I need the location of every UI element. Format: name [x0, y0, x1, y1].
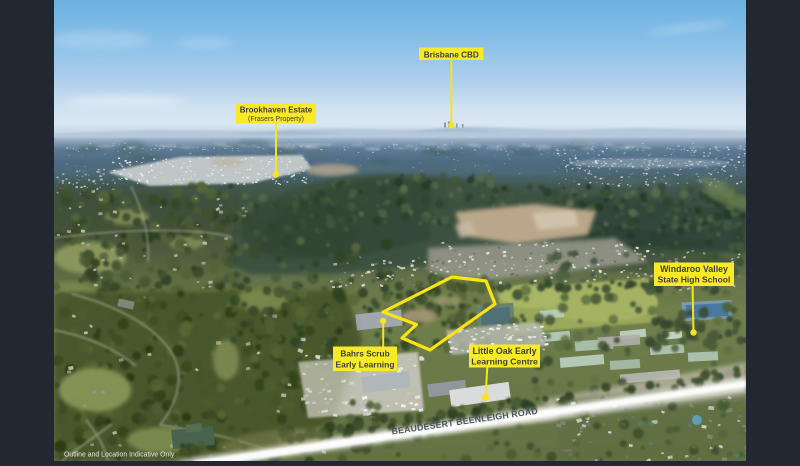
- svg-text:Learning Centre: Learning Centre: [471, 357, 538, 367]
- svg-text:Windaroo Valley: Windaroo Valley: [660, 264, 728, 274]
- svg-text:Brisbane CBD: Brisbane CBD: [424, 51, 479, 60]
- svg-text:Little Oak Early: Little Oak Early: [472, 346, 536, 356]
- svg-text:Early Learning: Early Learning: [335, 360, 394, 370]
- svg-text:(Frasers Property): (Frasers Property): [248, 116, 304, 123]
- svg-text:Bahrs Scrub: Bahrs Scrub: [340, 349, 389, 359]
- svg-text:State High School: State High School: [658, 275, 731, 285]
- svg-text:Outline and Location Indicativ: Outline and Location Indicative Only: [64, 452, 175, 459]
- svg-text:Brookhaven Estate: Brookhaven Estate: [240, 106, 313, 115]
